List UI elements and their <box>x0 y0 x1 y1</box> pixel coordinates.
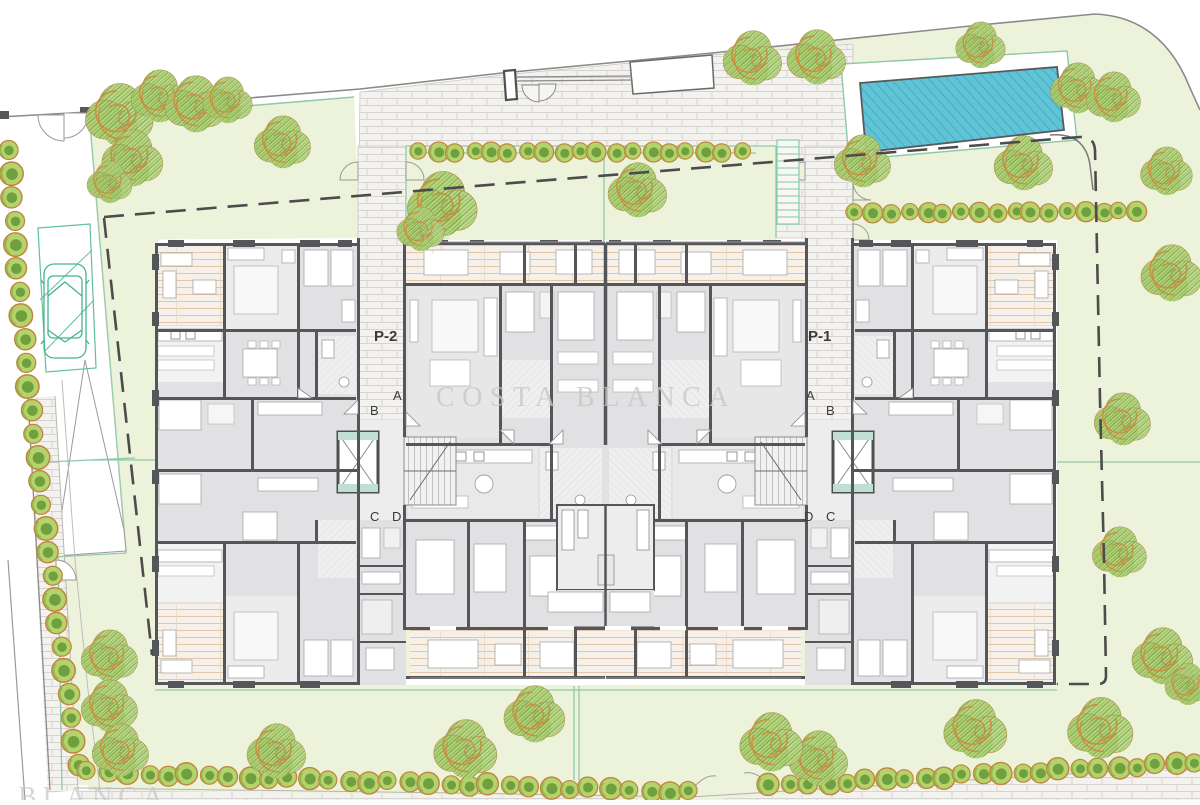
svg-text:B: B <box>826 403 835 418</box>
svg-text:D: D <box>392 509 401 524</box>
svg-text:A: A <box>806 388 815 403</box>
svg-text:C: C <box>826 509 835 524</box>
svg-text:BLANCA: BLANCA <box>18 782 169 800</box>
svg-text:A: A <box>393 388 402 403</box>
svg-text:D: D <box>804 509 813 524</box>
svg-text:C: C <box>370 509 379 524</box>
svg-text:B: B <box>370 403 379 418</box>
svg-text:COSTA BLANCA: COSTA BLANCA <box>436 382 736 413</box>
svg-text:P-2: P-2 <box>374 328 397 345</box>
svg-text:P-1: P-1 <box>808 328 831 345</box>
